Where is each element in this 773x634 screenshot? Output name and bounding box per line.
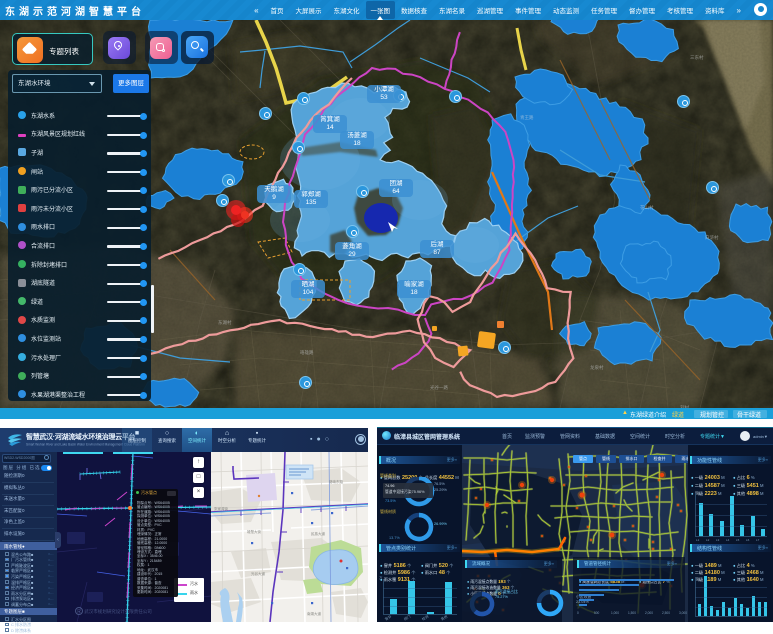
svg-text:26.99%: 26.99%	[434, 522, 448, 526]
svg-text:76.5%: 76.5%	[434, 482, 445, 486]
svg-text:13.7%: 13.7%	[389, 536, 400, 540]
svg-text:25.29%: 25.29%	[434, 488, 448, 492]
